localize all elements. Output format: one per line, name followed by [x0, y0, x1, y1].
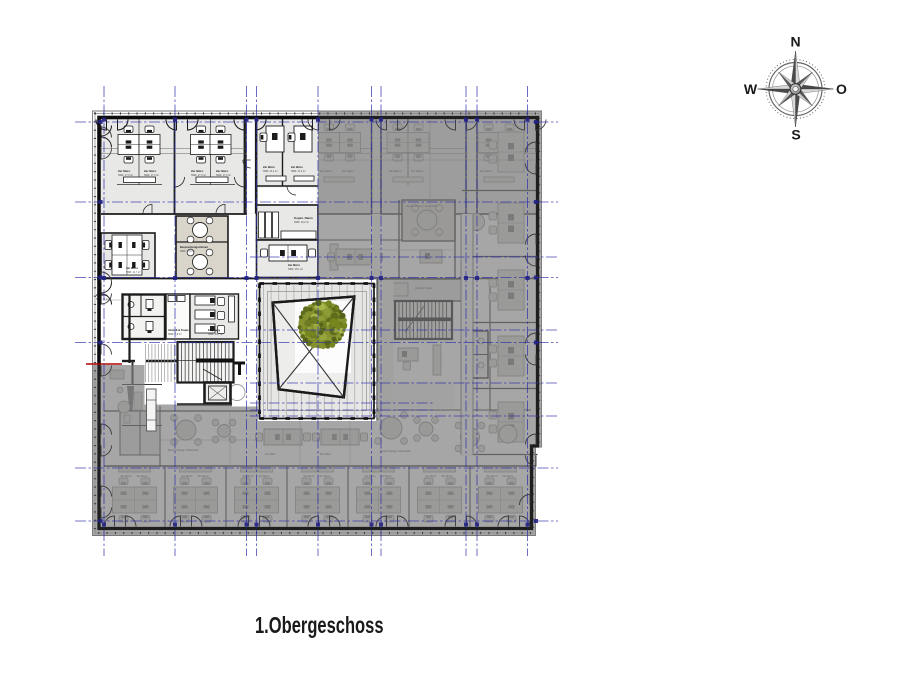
- svg-text:NWF: 23,6 m²: NWF: 23,6 m²: [180, 250, 195, 253]
- svg-text:2er Büro: 2er Büro: [288, 263, 300, 267]
- svg-text:2er Büro: 2er Büro: [118, 169, 131, 173]
- svg-text:1.Obergeschoss: 1.Obergeschoss: [255, 612, 384, 638]
- svg-text:2er Büro: 2er Büro: [291, 165, 303, 169]
- svg-text:O: O: [836, 81, 847, 97]
- svg-text:2er Büro: 2er Büro: [126, 266, 138, 270]
- svg-text:Empfang: Empfang: [208, 328, 220, 332]
- svg-text:NWF: 17,3 m²: NWF: 17,3 m²: [216, 174, 231, 177]
- svg-text:NWF: 11,2 m²: NWF: 11,2 m²: [263, 170, 278, 173]
- svg-text:2er Büro: 2er Büro: [216, 169, 229, 173]
- svg-text:NWF: 15,1 m²: NWF: 15,1 m²: [288, 268, 303, 271]
- svg-text:2er Büro: 2er Büro: [263, 165, 275, 169]
- svg-text:NWF: 13,7 m²: NWF: 13,7 m²: [208, 333, 223, 336]
- svg-text:Besprechungszimmer: Besprechungszimmer: [180, 245, 208, 249]
- svg-text:NWF: 17,3 m²: NWF: 17,3 m²: [118, 174, 133, 177]
- svg-text:NWF: 11,2 m²: NWF: 11,2 m²: [291, 170, 306, 173]
- svg-text:2er Büro: 2er Büro: [144, 169, 157, 173]
- svg-text:NWF: 17,3 m²: NWF: 17,3 m²: [144, 174, 159, 177]
- svg-text:S: S: [791, 127, 800, 143]
- svg-text:N: N: [790, 34, 800, 50]
- svg-text:2er Büro: 2er Büro: [191, 169, 204, 173]
- svg-text:Abstell.& Kopie: Abstell.& Kopie: [168, 328, 189, 332]
- svg-text:Kopier. Raum: Kopier. Raum: [294, 216, 313, 220]
- svg-text:NWF: 11,7 m²: NWF: 11,7 m²: [126, 271, 141, 274]
- svg-text:NWF: 19,2 m²: NWF: 19,2 m²: [294, 221, 309, 224]
- svg-text:W: W: [744, 81, 758, 97]
- svg-text:NWF: 17,3 m²: NWF: 17,3 m²: [191, 174, 206, 177]
